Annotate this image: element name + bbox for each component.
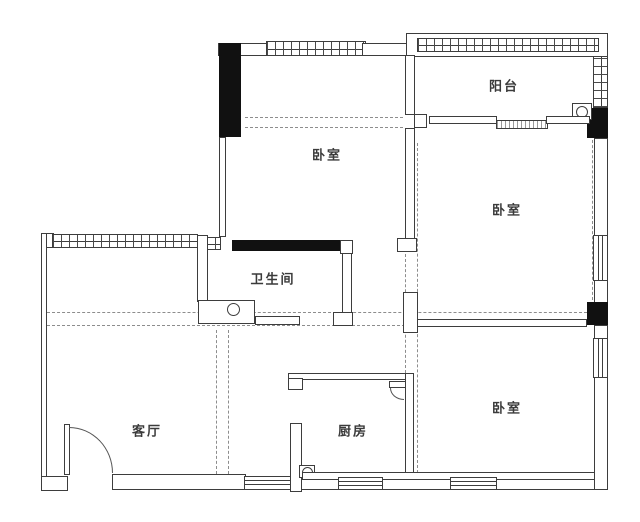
wall-kitchen-right: [405, 373, 414, 477]
wall-bedroom-se-right-lower: [594, 377, 608, 490]
label-kitchen: 厨房: [338, 421, 368, 440]
wall-kitchen-left: [290, 423, 302, 492]
label-living-room: 客厅: [132, 421, 162, 440]
column-bedroom-divider: [587, 302, 608, 325]
window-balcony-top: [417, 38, 599, 52]
wall-living-bottom: [112, 474, 246, 490]
wall-bedroom-east-left: [405, 128, 415, 240]
wall-balcony-divider-stub: [414, 114, 427, 128]
label-bedroom-north: 卧室: [312, 145, 342, 164]
bathroom-shelf: [255, 316, 300, 325]
wall-bedroom-east-left-stub: [397, 238, 417, 252]
floor-plan: 阳台 卧室 卧室 卧室 卫生间 客厅 厨房: [0, 0, 640, 522]
label-bathroom: 卫生间: [250, 269, 295, 288]
label-bedroom-east: 卧室: [492, 200, 522, 219]
wall-bedrooms-divider: [417, 319, 587, 327]
beam-bathroom-top: [232, 240, 340, 251]
wall-bedroom-north-left: [219, 137, 226, 237]
wall-living-bottom-corner: [41, 476, 68, 491]
wall-kitchen-top: [288, 373, 408, 380]
dashed-living-divider-right: [228, 330, 229, 474]
wall-bathroom-right-foot: [333, 312, 353, 326]
dashed-beam-bedroom-north-1: [245, 117, 403, 118]
wall-bedroom-north-top-right: [362, 43, 408, 56]
wall-bedroom-se-right-upper: [594, 325, 608, 339]
window-balcony-right: [593, 56, 608, 108]
label-bedroom-southeast: 卧室: [492, 398, 522, 417]
dashed-beam-horizontal-main: [47, 312, 587, 313]
outer-boundary-south: [302, 489, 608, 490]
label-balcony: 阳台: [489, 76, 519, 95]
window-living-bottom: [244, 476, 292, 490]
column-bedroom-north: [219, 43, 241, 137]
wall-bathroom-right: [342, 253, 352, 314]
window-bedroom-se-right: [593, 338, 608, 378]
window-bathroom-top-left: [206, 237, 221, 250]
wall-bedroom-east-left-upper: [405, 55, 415, 115]
wall-kitchen-top-step: [288, 378, 303, 390]
sliding-door-panel-right: [546, 116, 590, 124]
kitchen-door-arc: [390, 388, 404, 400]
dashed-beam-bedroom-north-2: [245, 127, 403, 128]
bathroom-sink-icon: [227, 303, 240, 316]
sliding-door-panel-middle: [496, 120, 548, 129]
window-bedroom-east-right: [593, 235, 608, 281]
sliding-door-panel-left: [429, 116, 497, 124]
kitchen-door-leaf: [389, 381, 406, 388]
wall-bedroom-east-right-lower: [594, 280, 608, 303]
dashed-living-divider-left: [216, 330, 217, 474]
wall-hallway-stub: [403, 292, 418, 333]
wall-living-left: [41, 233, 47, 479]
wall-bedroom-east-right-upper: [594, 138, 608, 236]
wall-bathroom-right-jamb: [340, 240, 353, 254]
entry-door-arc: [69, 427, 113, 473]
wall-bathroom-left: [197, 235, 208, 302]
window-living-top: [52, 234, 198, 248]
window-bedroom-north-top: [266, 41, 366, 56]
